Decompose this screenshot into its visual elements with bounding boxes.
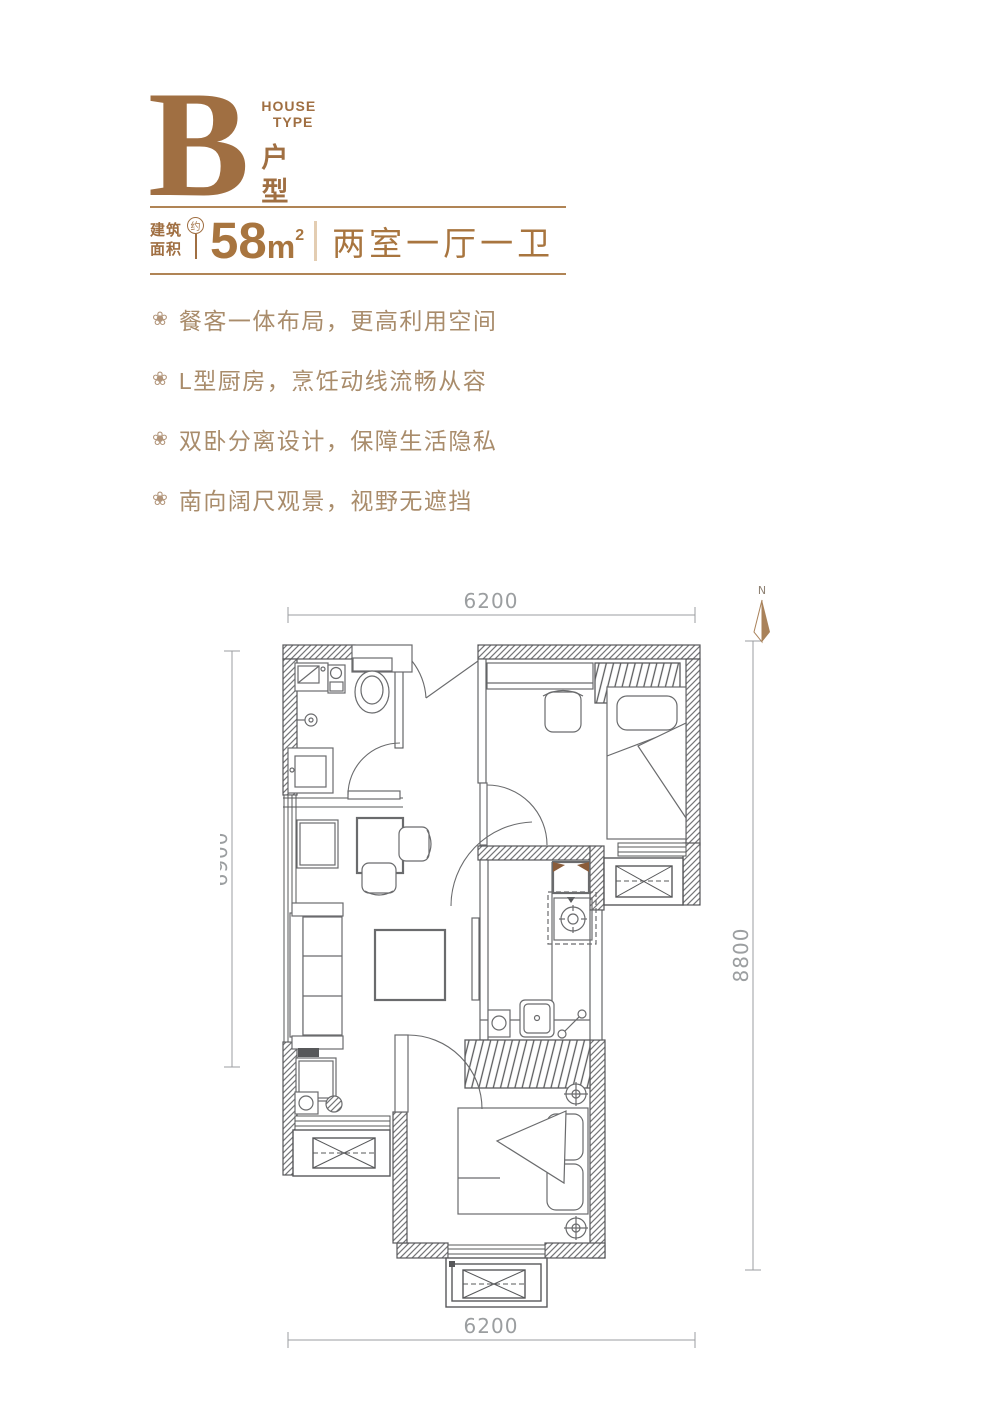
flower-icon: ❀ [152, 370, 168, 389]
dim-bottom: 6200 [464, 1314, 519, 1338]
under-counter-appliance [488, 1010, 510, 1037]
feature-text: 双卧分离设计，保障生活隐私 [179, 422, 498, 456]
flower-icon: ❀ [152, 490, 168, 509]
area-label-line2: 面积 [150, 241, 182, 260]
master-bedroom-furniture [458, 1040, 590, 1240]
feature-item: ❀ L型厨房，烹饪动线流畅从容 [152, 362, 497, 396]
faucet [558, 1010, 586, 1038]
house-type-subtitle: HOUSE TYPE 户 型 [261, 84, 313, 210]
header: B HOUSE TYPE 户 型 [148, 84, 313, 210]
coffee-table [375, 930, 445, 1000]
floorplan: 6200 6900 8800 6200 N [220, 580, 790, 1380]
area-unit: m [267, 231, 295, 263]
desk-chair [545, 692, 581, 732]
dining-chair [399, 827, 429, 861]
floorplan-svg: 6200 6900 8800 6200 N [220, 580, 790, 1380]
flower-icon: ❀ [152, 310, 168, 329]
kitchen-sink [520, 1000, 554, 1037]
entry-door [412, 661, 478, 698]
approx-badge-circle: 约 [187, 217, 204, 234]
north-compass-icon: N [754, 584, 770, 642]
area-number: 58 [210, 219, 267, 264]
area-band: 建筑 面积 约 58 m 2 两室一厅一卫 [150, 206, 566, 275]
area-label-line1: 建筑 [150, 222, 182, 241]
balcony-platform-south [446, 1258, 547, 1307]
dim-top: 6200 [464, 589, 519, 613]
house-type-cn-char2: 型 [261, 176, 313, 210]
approx-badge-stem [195, 234, 197, 259]
feature-text: 餐客一体布局，更高利用空间 [179, 302, 498, 336]
toilet [353, 658, 392, 671]
page: { "header": { "letter": "B", "subtitle_e… [0, 0, 1000, 1410]
flower-icon: ❀ [152, 430, 168, 449]
wardrobe [465, 1040, 590, 1088]
desk [487, 663, 593, 689]
area-unit-sup: 2 [295, 227, 304, 245]
area-label: 建筑 面积 [150, 222, 182, 260]
dining-chair [362, 863, 396, 893]
bathroom-door [348, 743, 400, 799]
house-type-letter: B [148, 84, 249, 210]
cabinet [297, 820, 338, 868]
feature-list: ❀ 餐客一体布局，更高利用空间 ❀ L型厨房，烹饪动线流畅从容 ❀ 双卧分离设计… [152, 302, 497, 542]
kitchen-door-arc [451, 822, 532, 906]
dim-left: 6900 [220, 832, 232, 887]
approx-badge: 约 [187, 217, 204, 259]
range-hood-cabinet [553, 862, 589, 903]
band-divider [314, 221, 317, 261]
dim-right: 8800 [729, 928, 753, 983]
tv [472, 918, 479, 1000]
layout-text: 两室一厅一卫 [332, 217, 554, 265]
house-type-cn-char1: 户 [261, 142, 313, 176]
living-dining-furniture [290, 818, 479, 1114]
feature-item: ❀ 餐客一体布局，更高利用空间 [152, 302, 497, 336]
area-value: 58 m 2 [210, 219, 304, 264]
bathroom-fixtures [288, 658, 392, 793]
sofa [290, 903, 343, 1049]
feature-item: ❀ 双卧分离设计，保障生活隐私 [152, 422, 497, 456]
ceiling-light [564, 1216, 588, 1240]
feature-text: 南向阔尺观景，视野无遮挡 [179, 482, 473, 516]
kitchen-fixtures [480, 862, 596, 1038]
house-type-en-line1: HOUSE [261, 98, 313, 114]
ac-platform-east [604, 858, 683, 905]
bedroom2-door [480, 783, 547, 845]
feature-text: L型厨房，烹饪动线流畅从容 [179, 362, 487, 396]
pillow [617, 696, 677, 730]
house-type-en: HOUSE TYPE [261, 98, 313, 130]
house-type-en-line2: TYPE [261, 114, 313, 130]
ac-platform-west [293, 1130, 390, 1176]
bedroom2-furniture [487, 663, 686, 839]
compass-label: N [758, 584, 766, 597]
house-type-cn: 户 型 [261, 142, 313, 210]
feature-item: ❀ 南向阔尺观景，视野无遮挡 [152, 482, 497, 516]
